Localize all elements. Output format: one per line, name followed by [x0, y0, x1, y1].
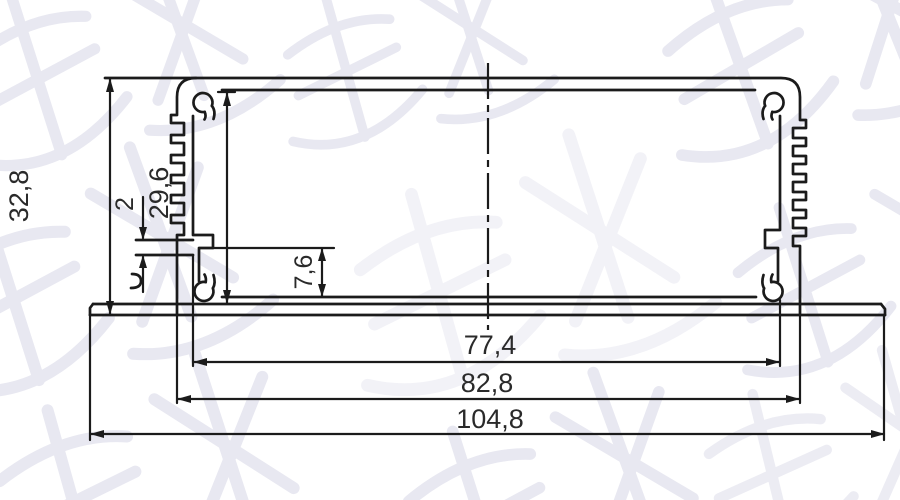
dim-label-wall-slot: 2	[111, 197, 139, 211]
dim-label-overall-width: 104,8	[456, 404, 524, 434]
dim-label-inner-height: 29,6	[144, 167, 174, 220]
dim-label-inner-width: 77,4	[464, 330, 517, 360]
leader-squiggle	[131, 274, 141, 288]
dim-label-body-width: 82,8	[461, 368, 514, 398]
arrow-down	[318, 284, 326, 297]
dim-label-overall-height: 32,8	[4, 170, 34, 223]
arrow-up	[223, 92, 231, 106]
arrow-right	[786, 395, 800, 403]
dim-label-pcb-ledge: 7,6	[290, 255, 318, 290]
flange-left-end	[90, 304, 93, 315]
technical-drawing-canvas: 32,8 29,6 2 7,6 77,4 82,8 104,8	[0, 0, 900, 500]
arrow-up	[106, 78, 114, 92]
profile-drawing: 32,8 29,6 2 7,6 77,4 82,8 104,8	[0, 0, 900, 500]
arrow-up	[318, 248, 326, 261]
arrow-up	[139, 255, 147, 268]
screw-boss-bottom-left	[194, 275, 214, 301]
screw-boss-bottom-right	[762, 275, 782, 301]
arrow-down	[139, 227, 147, 240]
arrow-left	[177, 395, 191, 403]
watermark	[0, 0, 900, 500]
arrow-right	[766, 358, 780, 366]
